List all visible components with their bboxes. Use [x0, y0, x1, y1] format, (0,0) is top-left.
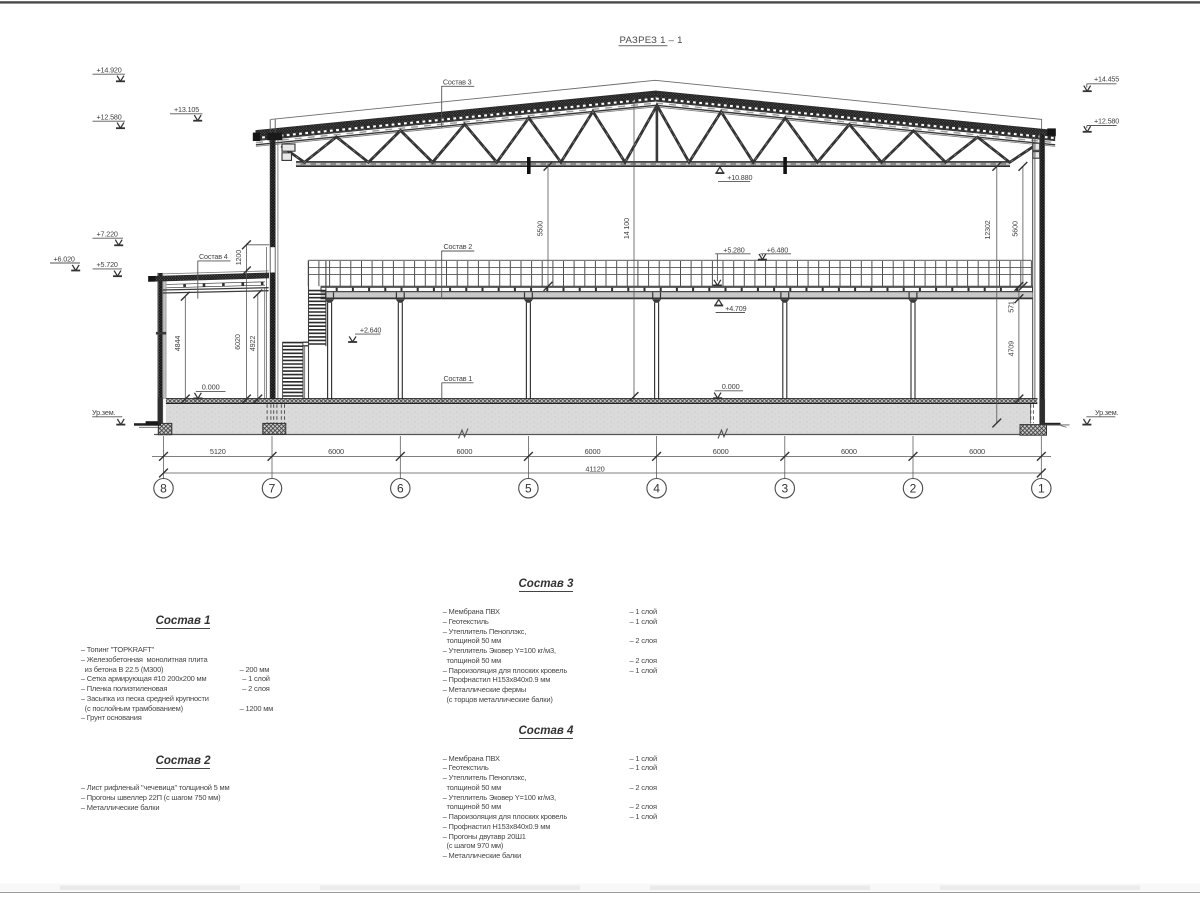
svg-text:6000: 6000	[456, 447, 472, 456]
svg-text:0.000: 0.000	[722, 382, 740, 391]
svg-text:+12.580: +12.580	[97, 113, 122, 122]
svg-text:14 100: 14 100	[622, 218, 631, 239]
svg-text:+10.880: +10.880	[727, 173, 752, 182]
svg-text:12302: 12302	[983, 220, 992, 239]
svg-text:Состав 4: Состав 4	[199, 252, 228, 261]
svg-text:6020: 6020	[233, 334, 242, 350]
svg-text:+6.480: +6.480	[767, 245, 788, 254]
svg-text:571: 571	[1007, 301, 1016, 313]
svg-text:РАЗРЕЗ 1 – 1: РАЗРЕЗ 1 – 1	[620, 35, 683, 46]
svg-text:5: 5	[525, 482, 532, 496]
svg-text:5500: 5500	[536, 221, 545, 237]
svg-text:+5.280: +5.280	[723, 245, 744, 254]
svg-text:+6.020: +6.020	[54, 254, 75, 263]
svg-text:+5.720: +5.720	[97, 260, 118, 269]
svg-text:Ур.зем.: Ур.зем.	[1095, 408, 1118, 417]
svg-text:Состав 1: Состав 1	[444, 374, 473, 383]
svg-text:+14.455: +14.455	[1094, 75, 1119, 84]
svg-text:+14.920: +14.920	[97, 66, 122, 75]
svg-text:2: 2	[910, 482, 917, 496]
svg-text:5120: 5120	[210, 447, 226, 456]
svg-text:1200: 1200	[234, 250, 243, 266]
svg-text:4922: 4922	[248, 336, 257, 352]
svg-text:0.000: 0.000	[202, 383, 220, 392]
svg-text:4844: 4844	[173, 336, 182, 352]
svg-text:+2.640: +2.640	[360, 325, 381, 334]
svg-text:Состав 3: Состав 3	[443, 77, 472, 86]
svg-text:7: 7	[269, 482, 276, 496]
svg-text:6000: 6000	[713, 447, 729, 456]
svg-text:6: 6	[397, 482, 404, 496]
svg-text:+13.105: +13.105	[174, 105, 199, 114]
svg-text:+12.580: +12.580	[1094, 116, 1119, 125]
svg-text:6000: 6000	[585, 447, 601, 456]
svg-text:6000: 6000	[328, 447, 344, 456]
svg-text:8: 8	[160, 482, 167, 496]
svg-text:4709: 4709	[1007, 341, 1016, 357]
svg-text:4: 4	[653, 482, 660, 496]
svg-text:Ур.зем.: Ур.зем.	[92, 408, 115, 417]
svg-text:1: 1	[1038, 482, 1045, 496]
svg-text:3: 3	[781, 482, 788, 496]
svg-text:Состав 2: Состав 2	[444, 242, 473, 251]
svg-text:5600: 5600	[1011, 221, 1020, 237]
svg-text:41120: 41120	[585, 464, 604, 473]
svg-text:6000: 6000	[841, 447, 857, 456]
svg-text:+7.220: +7.220	[97, 230, 118, 239]
svg-text:6000: 6000	[969, 447, 985, 456]
svg-text:+4.709: +4.709	[725, 304, 746, 313]
